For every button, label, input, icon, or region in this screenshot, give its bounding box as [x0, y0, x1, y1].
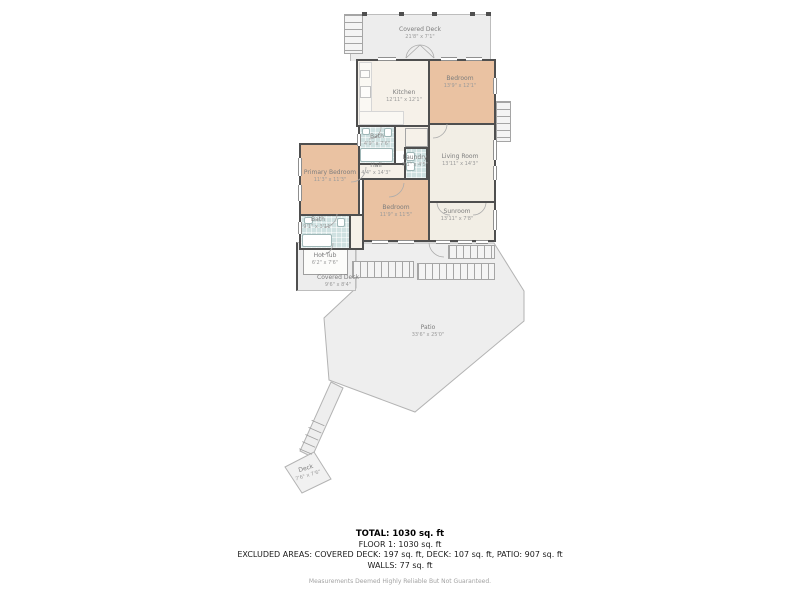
window: [458, 240, 472, 244]
room-living: [428, 123, 496, 203]
room-primary-bedroom: [299, 143, 360, 216]
window: [493, 210, 497, 230]
window: [493, 166, 497, 180]
washer: [406, 152, 415, 161]
sunroom-steps: [448, 245, 495, 259]
window: [441, 57, 457, 61]
dryer: [406, 162, 415, 171]
sink-bottom: [304, 217, 313, 224]
covered-deck-top-area: [350, 14, 491, 61]
deck-post: [362, 12, 367, 16]
deck-post: [486, 12, 491, 16]
exterior-stairs-right: [496, 101, 511, 142]
window: [298, 158, 302, 176]
sink-top: [362, 128, 370, 135]
patio-stairs-left: [352, 261, 414, 278]
walkway-shape: [300, 382, 343, 457]
window: [466, 57, 482, 61]
window: [476, 240, 488, 244]
deck-post: [470, 12, 475, 16]
window: [493, 78, 497, 94]
deck-post: [399, 12, 404, 16]
window: [398, 240, 414, 244]
room-bedroom-center: [362, 178, 430, 242]
window: [372, 240, 388, 244]
bathtub-top: [360, 148, 393, 162]
room-bedroom-top: [428, 59, 496, 125]
window: [298, 185, 302, 201]
area-summary: TOTAL: 1030 sq. ft FLOOR 1: 1030 sq. ft …: [0, 529, 800, 588]
window: [378, 57, 396, 61]
bathtub-bottom: [302, 234, 332, 247]
label-patio: Patio33'6" x 25'0": [412, 324, 445, 338]
kitchen-counter-bottom: [359, 111, 404, 125]
kitchen-stove: [360, 86, 371, 98]
label-deck: Deck7'6" x 7'6": [292, 461, 321, 482]
window: [436, 240, 450, 244]
total-area-line: TOTAL: 1030 sq. ft: [0, 529, 800, 540]
excluded-areas-line: EXCLUDED AREAS: COVERED DECK: 197 sq. ft…: [0, 550, 800, 561]
kitchen-sink: [360, 70, 370, 78]
window: [298, 222, 302, 234]
window: [357, 134, 361, 146]
deck-shape: [285, 452, 331, 493]
deck-post: [432, 12, 437, 16]
room-sunroom: [428, 201, 496, 242]
patio-stairs-right: [417, 263, 495, 280]
walkway-stairs: [299, 420, 324, 454]
window: [493, 140, 497, 160]
interior-stairs: [405, 128, 428, 147]
toilet-top: [384, 128, 392, 137]
deck-stairs-top-left: [344, 14, 363, 54]
disclaimer-line: Measurements Deemed Highly Reliable But …: [0, 577, 800, 588]
walls-area-line: WALLS: 77 sq. ft: [0, 561, 800, 572]
floor1-area-line: FLOOR 1: 1030 sq. ft: [0, 540, 800, 551]
toilet-bottom: [337, 218, 345, 227]
